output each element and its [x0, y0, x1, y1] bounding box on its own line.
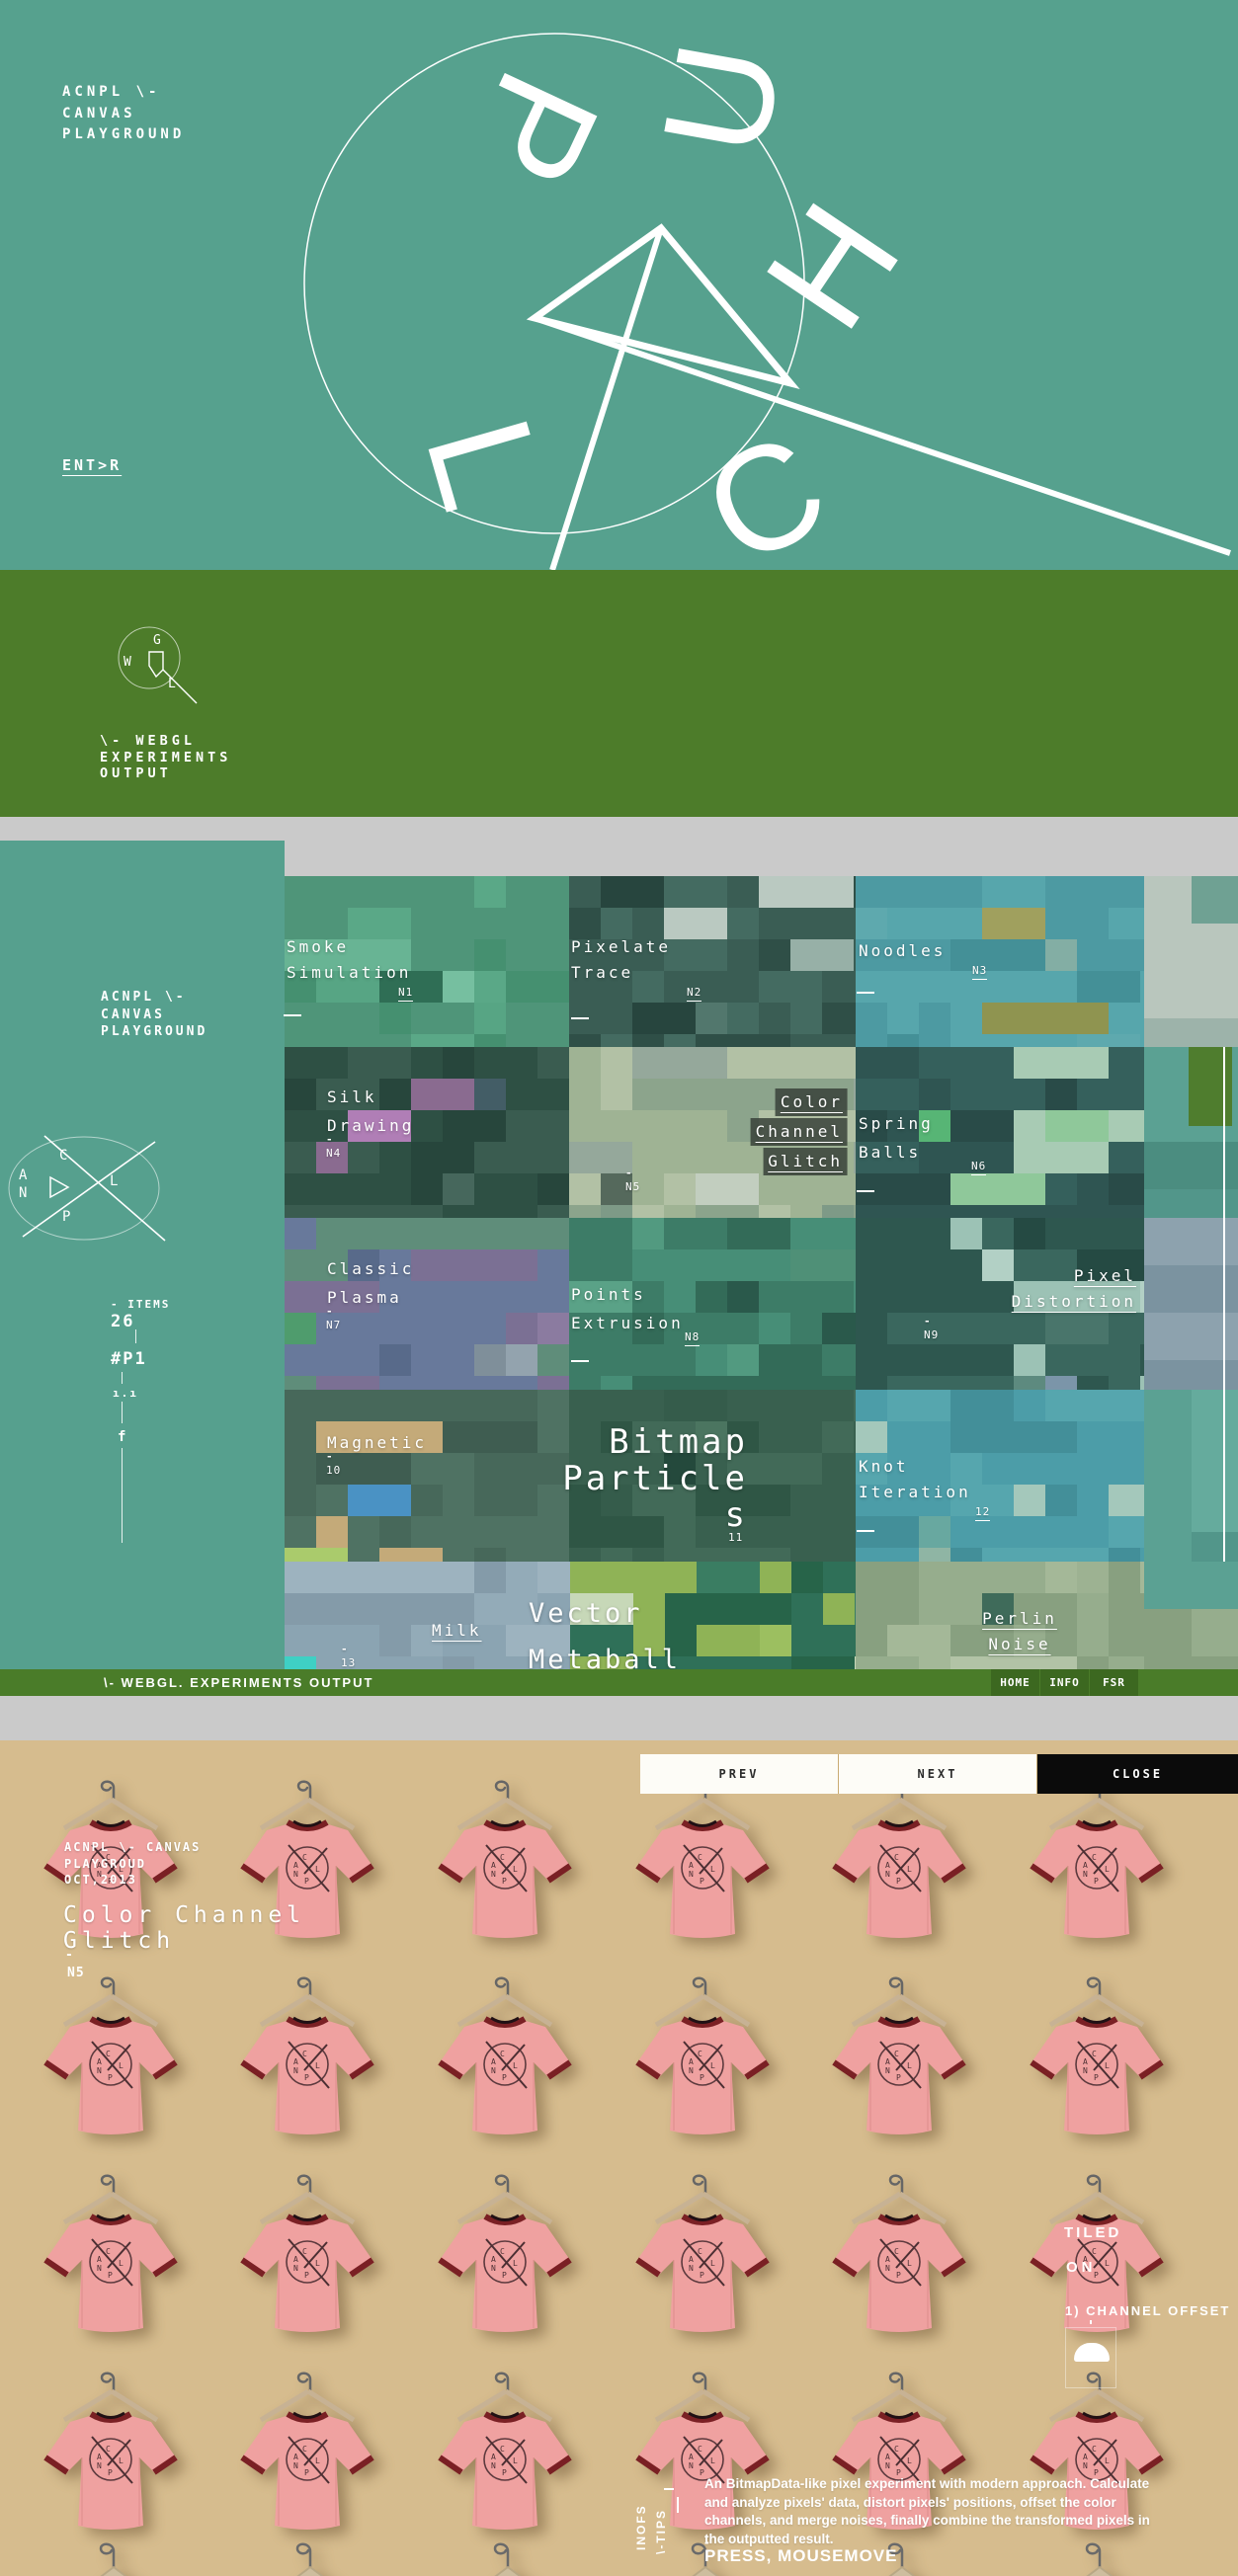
svg-text:L: L — [1105, 1865, 1110, 1874]
svg-text:L: L — [119, 2061, 124, 2070]
tile-title-line: Distortion — [1012, 1292, 1136, 1311]
svg-text:C: C — [59, 1148, 67, 1164]
svg-text:C: C — [698, 2445, 702, 2454]
svg-text:C: C — [894, 2445, 899, 2454]
svg-text:N: N — [97, 2461, 102, 2470]
wgl-letter-w: W — [124, 655, 131, 670]
tile-number-color-channel-glitch: -N5 — [625, 1169, 640, 1193]
svg-text:L: L — [907, 2061, 912, 2070]
svg-text:C: C — [302, 2445, 307, 2454]
svg-text:C: C — [106, 2050, 111, 2058]
tile-title-line: Glitch — [763, 1148, 848, 1175]
hero-logo-lines — [0, 0, 1238, 570]
tile-number-spring-balls: N6 — [971, 1160, 986, 1172]
detail-meta: ACNPL \- CANVAS PLAYGROUD OCT,2013 — [64, 1839, 201, 1889]
svg-text:A: A — [293, 2453, 298, 2461]
svg-text:P: P — [1094, 2073, 1099, 2082]
svg-text:C: C — [698, 1853, 702, 1862]
tile-number-bitmap-particles: 11 — [728, 1531, 743, 1544]
svg-text:N: N — [885, 2066, 890, 2075]
tshirt-image: CALNP — [431, 2166, 579, 2344]
tile-title-pixel-distortion[interactable]: PixelDistortion — [1012, 1263, 1136, 1315]
svg-text:P: P — [108, 2468, 113, 2477]
prev-button[interactable]: PREV — [640, 1754, 839, 1794]
svg-text:A: A — [1083, 2057, 1088, 2066]
svg-text:N: N — [97, 2066, 102, 2075]
tile-title-points-extrusion: PointsExtrusion — [571, 1280, 684, 1337]
tile-title-line: Drawing — [327, 1116, 414, 1135]
sidebar-divider — [135, 1329, 136, 1343]
svg-text:P: P — [700, 2073, 704, 2082]
svg-text:C: C — [1092, 2247, 1097, 2256]
detail-number-dash: - — [65, 1948, 73, 1963]
items-label: - ITEMS — [111, 1298, 170, 1311]
svg-text:L: L — [907, 2259, 912, 2268]
experiment-description: An BitmapData-like pixel experiment with… — [704, 2475, 1171, 2548]
svg-text:A: A — [491, 2057, 496, 2066]
tile-title-magnetic: Magnetic — [327, 1428, 427, 1457]
svg-text:N: N — [689, 2264, 694, 2273]
tile-title-line: Color — [776, 1088, 848, 1116]
tile-title-line: Knot — [859, 1457, 909, 1476]
tile-number-knot-iteration: 12 — [975, 1505, 990, 1518]
tshirt-image: CALNP — [1023, 1969, 1171, 2146]
svg-text:P: P — [896, 2271, 901, 2280]
tile-title-line: s — [725, 1495, 748, 1535]
svg-text:P: P — [896, 2073, 901, 2082]
hero-brand: ACNPL \- CANVAS PLAYGROUND — [62, 82, 185, 146]
svg-text:P: P — [304, 1877, 309, 1886]
tile-title-line: Trace — [571, 963, 633, 982]
tile-title-knot-iteration: KnotIteration — [859, 1454, 971, 1505]
svg-text:A: A — [689, 2453, 694, 2461]
svg-text:L: L — [513, 1865, 518, 1874]
svg-text:P: P — [896, 1877, 901, 1886]
svg-text:P: P — [502, 2468, 507, 2477]
tips-vertical-label: \-TIPS — [654, 2459, 668, 2554]
svg-text:C: C — [698, 2050, 702, 2058]
tile-title-spring-balls: SpringBalls — [859, 1109, 934, 1167]
tshirt-image: CALNP — [37, 2364, 185, 2541]
svg-text:A: A — [293, 2057, 298, 2066]
detail-number: N5 — [67, 1966, 85, 1980]
tick-mark-h — [664, 2488, 674, 2490]
svg-text:L: L — [315, 2259, 320, 2268]
enter-link[interactable]: ENT>R — [62, 456, 122, 474]
svg-text:L: L — [315, 1865, 320, 1874]
tile-title-line: Points — [571, 1285, 646, 1304]
svg-text:C: C — [500, 2445, 505, 2454]
svg-text:P: P — [1094, 1877, 1099, 1886]
tile-number-classic-plasma: -N7 — [326, 1308, 341, 1331]
tile-strip-r1 — [1144, 876, 1238, 1047]
tshirt-image-partial — [37, 2534, 185, 2576]
tshirt-image: CALNP — [431, 2364, 579, 2541]
svg-text:C: C — [1092, 1853, 1097, 1862]
svg-text:A: A — [885, 2057, 890, 2066]
tile-title-line: Noise — [988, 1635, 1050, 1653]
tile-title-line: Pixelate — [571, 937, 671, 956]
svg-text:N: N — [491, 2461, 496, 2470]
webgl-banner-section: G W L \- WEBGL EXPERIMENTS OUTPUT — [0, 570, 1238, 817]
svg-text:N: N — [491, 2066, 496, 2075]
svg-text:N: N — [885, 2461, 890, 2470]
tshirt-image: CALNP — [825, 2166, 973, 2344]
tile-title-line: Plasma — [327, 1288, 402, 1307]
tile-title-line: Vector — [529, 1598, 643, 1629]
svg-text:L: L — [119, 2456, 124, 2465]
items-count: 26 — [111, 1312, 134, 1331]
tile-title-color-channel-glitch[interactable]: ColorChannelGlitch — [751, 1088, 848, 1177]
svg-text:N: N — [293, 2264, 298, 2273]
tile-title-line: Silk — [327, 1087, 377, 1106]
svg-text:N: N — [885, 1870, 890, 1879]
tshirt-image: CALNP — [233, 1969, 381, 2146]
svg-text:L: L — [710, 2456, 715, 2465]
tile-title-line: Balls — [859, 1143, 921, 1162]
tile-title-line: Bitmap — [609, 1422, 748, 1462]
svg-text:A: A — [97, 2453, 102, 2461]
svg-text:P: P — [62, 1209, 70, 1225]
tshirt-image: CALNP — [1023, 1772, 1171, 1950]
svg-text:A: A — [1083, 2453, 1088, 2461]
page: { "colors": { "teal": "#56a18e", "banner… — [0, 0, 1238, 2576]
svg-text:P: P — [108, 2271, 113, 2280]
close-button[interactable]: CLOSE — [1037, 1754, 1238, 1794]
tshirt-image: CALNP — [431, 1772, 579, 1950]
tshirt-image: CALNP — [628, 1772, 777, 1950]
sidebar-brand: ACNPL \- CANVAS PLAYGROUND — [101, 989, 207, 1041]
tile-title-line: Extrusion — [571, 1314, 684, 1332]
svg-text:N: N — [491, 1870, 496, 1879]
tile-number-pixel-distortion: -N9 — [924, 1318, 939, 1341]
tile-number-noodles: N3 — [972, 964, 987, 977]
tshirt-image: CALNP — [37, 1969, 185, 2146]
svg-text:A: A — [293, 2255, 298, 2264]
svg-text:C: C — [894, 2247, 899, 2256]
svg-text:C: C — [1092, 2445, 1097, 2454]
svg-text:L: L — [119, 2259, 124, 2268]
infos-vertical-label: INOFS — [634, 2459, 648, 2550]
separator-band-top — [0, 817, 1238, 841]
facebook-icon[interactable]: f — [118, 1429, 127, 1445]
svg-text:C: C — [106, 2247, 111, 2256]
tshirt-image: CALNP — [233, 2364, 381, 2541]
tile-strip-r5 — [1144, 1562, 1238, 1669]
social-icon-1[interactable]: ı.ı — [113, 1387, 138, 1400]
svg-text:A: A — [689, 2057, 694, 2066]
footer-buttons: HOME INFO FSR — [991, 1669, 1138, 1696]
svg-text:P: P — [700, 1877, 704, 1886]
tile-milk[interactable] — [285, 1562, 570, 1669]
svg-text:C: C — [500, 1853, 505, 1862]
svg-text:L: L — [513, 2061, 518, 2070]
svg-text:L: L — [110, 1173, 118, 1189]
tile-title-line: Perlin — [982, 1609, 1057, 1628]
svg-text:N: N — [1083, 2066, 1088, 2075]
tile-title-line: Simulation — [287, 963, 411, 982]
svg-text:P: P — [304, 2073, 309, 2082]
svg-text:N: N — [491, 2264, 496, 2273]
tile-title-line: Iteration — [859, 1483, 971, 1501]
tile-title-bitmap-particles: BitmapParticles — [562, 1424, 748, 1534]
svg-text:N: N — [1083, 1870, 1088, 1879]
svg-text:N: N — [293, 1870, 298, 1879]
svg-text:L: L — [1105, 2061, 1110, 2070]
hero-section: PUHCL ACNPL \- CANVAS PLAYGROUND ENT>R — [0, 0, 1238, 570]
tile-number-points-extrusion: N8 — [685, 1330, 700, 1343]
svg-text:P: P — [304, 2271, 309, 2280]
svg-text:N: N — [689, 2066, 694, 2075]
tshirt-image-partial — [233, 2534, 381, 2576]
press-mousemove-label: PRESS, MOUSEMOVE — [704, 2546, 897, 2566]
sidebar-divider — [122, 1402, 123, 1423]
svg-text:A: A — [885, 2453, 890, 2461]
svg-text:N: N — [293, 2066, 298, 2075]
svg-text:C: C — [302, 1853, 307, 1862]
tile-title-perlin-noise[interactable]: PerlinNoise — [982, 1606, 1057, 1657]
svg-text:C: C — [894, 2050, 899, 2058]
tile-number-magnetic: -10 — [326, 1453, 341, 1477]
svg-text:N: N — [689, 1870, 694, 1879]
tile-title-line: Milk — [432, 1621, 482, 1640]
svg-text:C: C — [500, 2050, 505, 2058]
svg-text:C: C — [500, 2247, 505, 2256]
svg-text:C: C — [302, 2050, 307, 2058]
tile-title-line: Spring — [859, 1114, 934, 1133]
svg-text:A: A — [19, 1167, 28, 1183]
svg-text:N: N — [885, 2264, 890, 2273]
svg-text:P: P — [108, 2073, 113, 2082]
svg-text:L: L — [907, 2456, 912, 2465]
banner-text: \- WEBGL EXPERIMENTS OUTPUT — [100, 733, 231, 782]
svg-text:L: L — [907, 1865, 912, 1874]
tiled-on-label[interactable]: ON — [1066, 2259, 1097, 2276]
info-button[interactable]: INFO — [1040, 1669, 1089, 1696]
tshirt-image: CALNP — [825, 1969, 973, 2146]
svg-text:L: L — [315, 2061, 320, 2070]
svg-text:N: N — [19, 1185, 27, 1201]
separator-band-bottom — [0, 1696, 1238, 1740]
tile-number-pixelate-trace: N2 — [687, 986, 702, 999]
svg-text:C: C — [106, 2445, 111, 2454]
svg-text:L: L — [315, 2456, 320, 2465]
tshirt-image: CALNP — [37, 2166, 185, 2344]
svg-text:P: P — [304, 2468, 309, 2477]
sidebar-divider — [122, 1372, 123, 1384]
tick-mark-v — [677, 2497, 679, 2513]
svg-text:C: C — [698, 2247, 702, 2256]
tile-title-line: Smoke — [287, 937, 349, 956]
svg-text:L: L — [710, 2061, 715, 2070]
tshirt-image: CALNP — [431, 1969, 579, 2146]
tile-title-classic-plasma: ClassicPlasma — [327, 1254, 414, 1312]
svg-text:N: N — [293, 2461, 298, 2470]
svg-text:L: L — [710, 2259, 715, 2268]
home-button[interactable]: HOME — [991, 1669, 1039, 1696]
tile-title-line: Particle — [562, 1459, 748, 1498]
grid-top-strip — [285, 841, 1238, 876]
svg-text:A: A — [689, 2255, 694, 2264]
svg-text:L: L — [513, 2456, 518, 2465]
svg-text:P: P — [502, 2073, 507, 2082]
svg-text:A: A — [491, 2453, 496, 2461]
tile-title-milk[interactable]: Milk — [432, 1618, 482, 1644]
svg-text:N: N — [1083, 2461, 1088, 2470]
svg-text:L: L — [710, 1865, 715, 1874]
tshirt-image-partial — [431, 2534, 579, 2576]
svg-text:A: A — [689, 1861, 694, 1870]
grid-accent-line — [1223, 1047, 1225, 1562]
svg-text:P: P — [700, 2271, 704, 2280]
svg-text:A: A — [97, 2255, 102, 2264]
footer-label: \- WEBGL. EXPERIMENTS OUTPUT — [104, 1675, 373, 1690]
svg-text:A: A — [1083, 1861, 1088, 1870]
wgl-letter-g: G — [153, 633, 161, 648]
tshirt-image: CALNP — [628, 2166, 777, 2344]
tile-number-smoke-simulation: N1 — [398, 986, 413, 999]
svg-text:L: L — [1105, 2259, 1110, 2268]
tile-title-noodles: Noodles — [859, 938, 946, 964]
channel-offset-label: 1) CHANNEL OFFSET — [1065, 2303, 1230, 2318]
svg-text:C: C — [1092, 2050, 1097, 2058]
svg-text:L: L — [513, 2259, 518, 2268]
tile-title-line: Classic — [327, 1259, 414, 1278]
detail-toolbar: PREV NEXT CLOSE — [640, 1754, 1238, 1794]
tile-title-line: Noodles — [859, 941, 946, 960]
svg-text:P: P — [502, 1877, 507, 1886]
mouse-icon-dot — [1090, 2320, 1092, 2324]
sidebar-divider — [122, 1448, 123, 1543]
svg-text:A: A — [885, 2255, 890, 2264]
svg-text:A: A — [491, 2255, 496, 2264]
tshirt-image: CALNP — [628, 1969, 777, 2146]
svg-text:C: C — [894, 1853, 899, 1862]
next-button[interactable]: NEXT — [839, 1754, 1037, 1794]
tile-title-line: Magnetic — [327, 1433, 427, 1452]
tshirt-image: CALNP — [233, 2166, 381, 2344]
svg-text:A: A — [97, 2057, 102, 2066]
grid-accent-block — [1189, 1047, 1232, 1126]
fullscreen-button[interactable]: FSR — [1090, 1669, 1138, 1696]
svg-text:N: N — [689, 2461, 694, 2470]
svg-text:A: A — [491, 1861, 496, 1870]
tile-title-silk-drawing: SilkDrawing — [327, 1083, 414, 1140]
acnpl-logo-icon: C A N L P — [5, 1134, 173, 1243]
svg-text:C: C — [302, 2247, 307, 2256]
tile-title-pixelate-trace: PixelateTrace — [571, 934, 671, 986]
tile-title-line: Pixel — [1074, 1266, 1136, 1285]
svg-text:L: L — [1105, 2456, 1110, 2465]
detail-title: Color Channel Glitch — [63, 1902, 305, 1954]
gallery-sidebar: ACNPL \- CANVAS PLAYGROUND C A N L P - I… — [0, 841, 285, 1669]
svg-text:P: P — [502, 2271, 507, 2280]
tshirt-image: CALNP — [825, 1772, 973, 1950]
svg-text:A: A — [293, 1861, 298, 1870]
wgl-logo-icon: G W L — [114, 622, 212, 716]
tile-number-milk: -13 — [341, 1646, 356, 1669]
svg-text:N: N — [97, 2264, 102, 2273]
tile-number-silk-drawing: -N4 — [326, 1136, 341, 1160]
tile-title-smoke-simulation: SmokeSimulation — [287, 934, 411, 986]
tiled-label[interactable]: TILED — [1064, 2224, 1121, 2241]
page-indicator[interactable]: #P1 — [111, 1349, 147, 1369]
tile-title-line: Channel — [751, 1118, 848, 1146]
svg-text:A: A — [885, 1861, 890, 1870]
